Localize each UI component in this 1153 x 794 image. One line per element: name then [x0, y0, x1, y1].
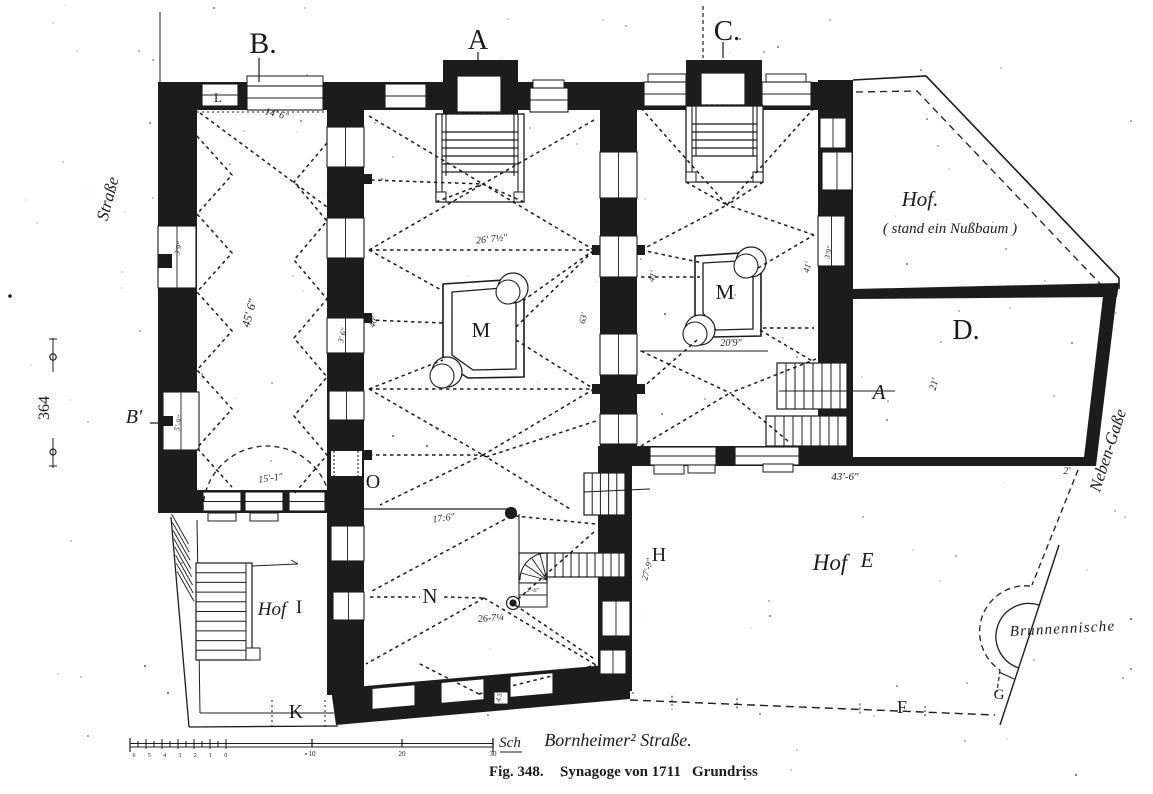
svg-text:A: A — [468, 25, 489, 56]
svg-text:Synagoge von 1711: Synagoge von 1711 — [560, 764, 681, 780]
svg-text:Hof: Hof — [812, 550, 851, 575]
svg-text:F: F — [897, 697, 907, 717]
svg-text:30: 30 — [490, 750, 498, 758]
svg-text:Grundriss: Grundriss — [692, 764, 758, 780]
svg-text:B.: B. — [249, 27, 277, 60]
svg-text:K: K — [289, 701, 304, 723]
svg-text:Bornheimer² Straße.: Bornheimer² Straße. — [544, 730, 691, 750]
svg-text:1: 1 — [209, 753, 212, 759]
svg-text:364: 364 — [36, 396, 53, 420]
svg-text:10: 10 — [309, 750, 317, 758]
svg-text:2′-6″: 2′-6″ — [527, 587, 540, 594]
svg-text:M: M — [472, 318, 491, 342]
svg-text:Sch: Sch — [499, 735, 521, 751]
svg-text:5: 5 — [148, 753, 151, 759]
svg-text:3: 3 — [178, 753, 181, 759]
svg-text:Hof: Hof — [257, 599, 289, 620]
svg-text:O: O — [366, 471, 380, 493]
svg-text:P: P — [601, 305, 611, 321]
svg-text:20: 20 — [399, 750, 407, 758]
svg-text:C.: C. — [714, 15, 741, 47]
svg-text:A: A — [871, 380, 886, 404]
svg-text:N: N — [422, 584, 437, 608]
svg-text:G: G — [994, 687, 1005, 703]
svg-text:2: 2 — [194, 753, 197, 759]
svg-text:6: 6 — [133, 753, 136, 759]
svg-text:43′-6″: 43′-6″ — [831, 471, 859, 483]
svg-text:E: E — [860, 548, 874, 572]
svg-text:26-7¼: 26-7¼ — [477, 612, 504, 625]
svg-text:( stand ein Nußbaum ): ( stand ein Nußbaum ) — [883, 221, 1017, 237]
svg-text:I: I — [296, 597, 302, 618]
svg-text:M: M — [716, 280, 735, 304]
svg-text:Fig. 348.: Fig. 348. — [489, 764, 544, 780]
svg-text:0: 0 — [224, 753, 227, 759]
svg-text:D.: D. — [952, 315, 979, 346]
svg-text:B′: B′ — [126, 406, 143, 428]
svg-text:20′9″: 20′9″ — [720, 338, 742, 349]
svg-text:L: L — [214, 90, 222, 105]
svg-text:4: 4 — [163, 753, 166, 759]
svg-text:Hof.: Hof. — [901, 187, 939, 211]
svg-text:2′: 2′ — [1063, 466, 1071, 477]
